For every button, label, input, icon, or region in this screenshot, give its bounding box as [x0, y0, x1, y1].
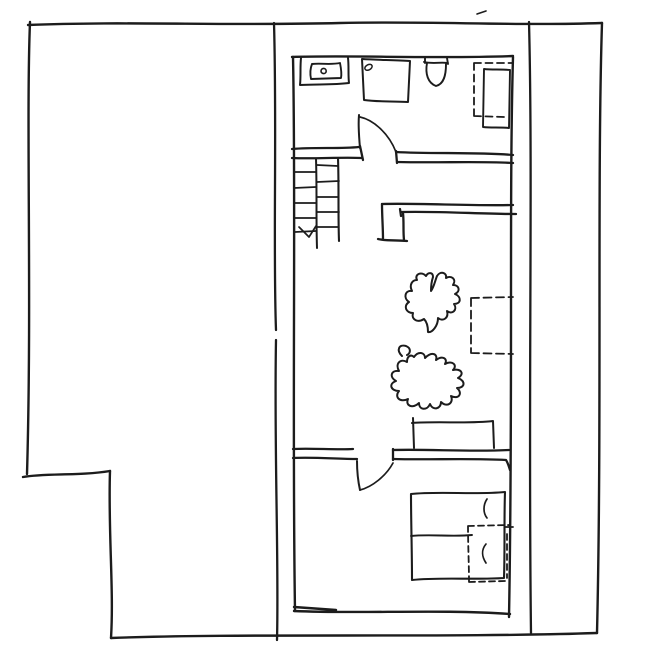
wall-top	[292, 56, 513, 57]
site-notch-vertical	[110, 471, 112, 638]
plant-lower-curl	[399, 346, 410, 356]
wall-stairwell-top	[382, 204, 513, 205]
wall-bath-right-outer	[396, 152, 513, 155]
site-boundary-top	[28, 23, 602, 25]
pillow-crease-bottom	[483, 544, 486, 563]
stray-pen-mark	[477, 11, 486, 14]
wall-bath-left-outer	[292, 147, 359, 149]
plant-lower	[391, 353, 463, 409]
site-boundary-left	[27, 22, 30, 474]
wall-stairwell-bottom	[400, 209, 516, 216]
floor-plan-sheet	[0, 0, 648, 664]
wall-bath-right-cap	[396, 151, 397, 163]
shower-drain	[365, 64, 372, 70]
wall-bedroom-left-outer	[293, 449, 353, 450]
wall-bath-left-inner	[292, 158, 362, 159]
bath-dresser	[483, 69, 510, 128]
site-notch-horizontal	[23, 471, 110, 477]
sink-faucet-dot	[321, 68, 326, 73]
bedroom-door-arc	[360, 463, 393, 490]
plant-upper	[405, 273, 459, 332]
bedroom-door-leaf	[357, 461, 360, 490]
wall-bath-right-inner	[397, 162, 513, 163]
site-boundary-bottom	[111, 633, 597, 638]
site-boundary-right	[597, 23, 602, 633]
bathroom-door-arc	[360, 117, 396, 152]
floor-plan-drawing	[0, 0, 648, 664]
pillow-crease-top	[484, 499, 487, 518]
living-dashed-box	[471, 297, 513, 354]
wall-right	[509, 57, 513, 617]
bathroom-door-leaf	[359, 115, 360, 148]
shower-tray	[362, 59, 410, 102]
fence-line-left	[274, 23, 277, 640]
stairs-right-rail	[338, 158, 339, 241]
wall-bedroom-left-inner	[293, 458, 357, 459]
toilet	[424, 58, 448, 86]
bath-closet-dashed-outline	[474, 63, 513, 117]
bed-center-line	[411, 535, 472, 536]
wall-bedroom-right-outer	[393, 450, 509, 451]
wall-stairwell-stub	[378, 204, 407, 241]
wall-left	[293, 57, 295, 611]
wall-bedroom-right-inner	[393, 459, 510, 470]
fence-line-right	[529, 22, 531, 633]
sideboard	[412, 418, 494, 448]
wall-bedroom-bottom	[294, 607, 510, 614]
